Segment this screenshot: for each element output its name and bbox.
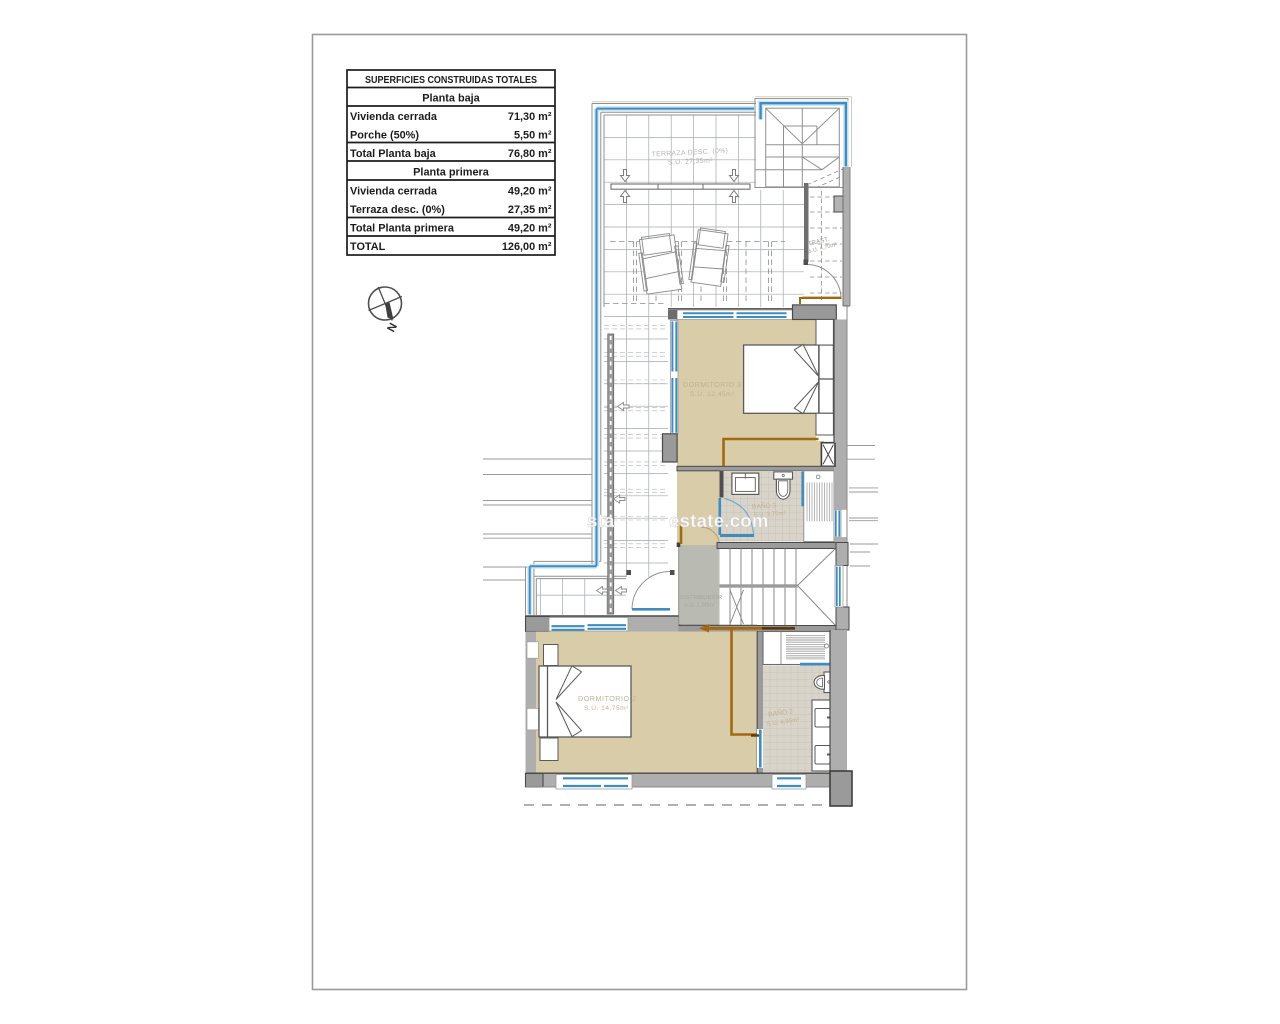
- svg-text:Planta primera: Planta primera: [413, 167, 490, 179]
- svg-text:estate.com: estate.com: [669, 510, 769, 531]
- svg-text:Terraza desc. (0%): Terraza desc. (0%): [350, 204, 445, 216]
- svg-text:Porche (50%): Porche (50%): [350, 130, 419, 142]
- svg-text:Total Planta primera: Total Planta primera: [350, 223, 455, 235]
- svg-text:76,80 m²: 76,80 m²: [508, 148, 552, 160]
- svg-text:S.U. 1,80m²: S.U. 1,80m²: [684, 603, 715, 609]
- svg-text:71,30 m²: 71,30 m²: [508, 111, 552, 123]
- svg-text:Vivienda cerrada: Vivienda cerrada: [350, 111, 438, 123]
- svg-text:49,20 m²: 49,20 m²: [508, 186, 552, 198]
- svg-text:DORMITORIO 2: DORMITORIO 2: [578, 694, 637, 703]
- svg-text:Planta baja: Planta baja: [422, 93, 480, 105]
- svg-text:sta: sta: [587, 510, 615, 531]
- svg-text:SUPERFICIES CONSTRUIDAS TOTALE: SUPERFICIES CONSTRUIDAS TOTALES: [365, 75, 537, 86]
- svg-text:27,35 m²: 27,35 m²: [508, 204, 552, 216]
- svg-text:DORMITORIO 3: DORMITORIO 3: [683, 380, 742, 389]
- svg-text:5,50 m²: 5,50 m²: [514, 130, 552, 142]
- svg-text:Vivienda cerrada: Vivienda cerrada: [350, 186, 438, 198]
- svg-text:49,20 m²: 49,20 m²: [508, 223, 552, 235]
- svg-text:S.U. 14,75m²: S.U. 14,75m²: [584, 705, 629, 712]
- svg-text:S.U. 12,45m²: S.U. 12,45m²: [690, 391, 735, 398]
- svg-text:Total Planta baja: Total Planta baja: [350, 148, 437, 160]
- svg-text:TOTAL: TOTAL: [350, 241, 386, 253]
- svg-text:126,00 m²: 126,00 m²: [502, 241, 552, 253]
- svg-text:DISTRIBUIDOR: DISTRIBUIDOR: [680, 595, 722, 601]
